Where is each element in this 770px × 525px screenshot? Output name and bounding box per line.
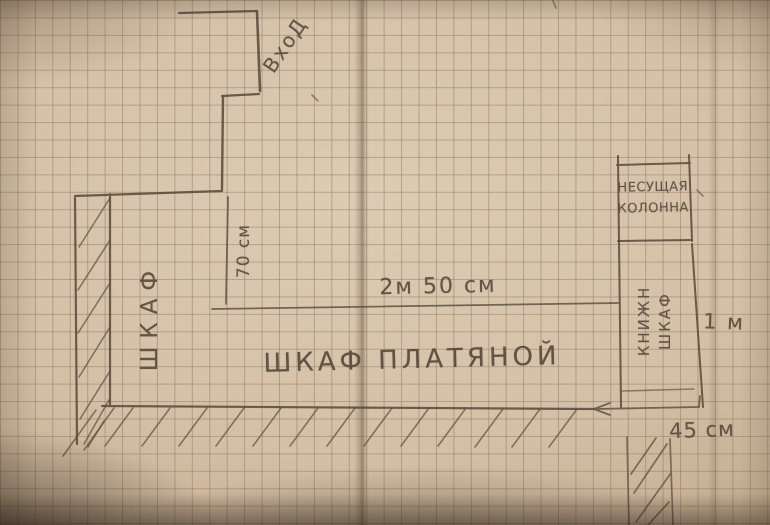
load-bearing-column-label: НЕСУЩАЯ КОЛОННА [613, 168, 692, 227]
dimension-1m-label: 1 м [699, 305, 748, 339]
bookcase-label: КНИЖН ШКАФ [632, 246, 678, 396]
bookcase-label-line2: ШКАФ [655, 292, 676, 350]
column-label-line2: КОЛОННА [617, 197, 689, 219]
hatching-bottom-wall [63, 408, 577, 456]
photo-of-sketch: ВхоД ШКАФ 70 см 2м 50 см ШКАФ ПЛАТЯНОЙ Н… [0, 0, 770, 525]
hatching-left-wall [78, 198, 110, 447]
stray-marks [312, 1, 703, 196]
hatching-right-wall [627, 437, 673, 525]
dimension-45cm-label: 45 см [659, 413, 744, 448]
dimension-2m50-label: 2м 50 см [358, 269, 519, 302]
dimension-70cm-label: 70 см [233, 215, 255, 287]
wardrobe-side-label: ШКАФ [137, 252, 163, 382]
bookcase-label-line1: КНИЖН [634, 286, 655, 357]
column-label-line1: НЕСУЩАЯ [617, 176, 688, 198]
